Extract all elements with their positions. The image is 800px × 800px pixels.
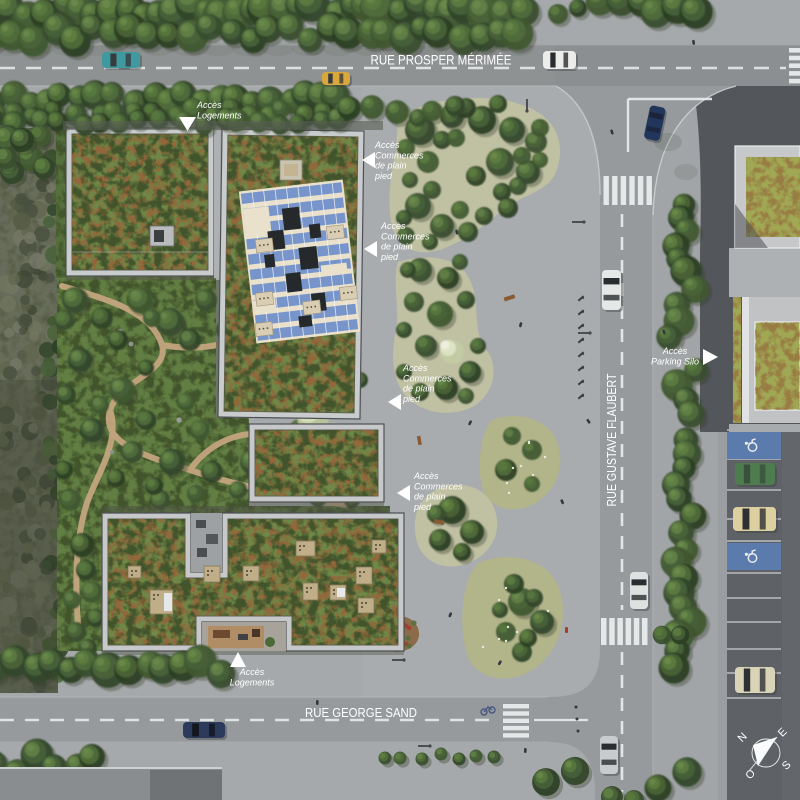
- svg-text:RUE GUSTAVE FLAUBERT: RUE GUSTAVE FLAUBERT: [604, 373, 619, 506]
- svg-text:RUE PROSPER MÉRIMÉE: RUE PROSPER MÉRIMÉE: [371, 53, 512, 68]
- svg-text:RUE GEORGE SAND: RUE GEORGE SAND: [305, 705, 417, 720]
